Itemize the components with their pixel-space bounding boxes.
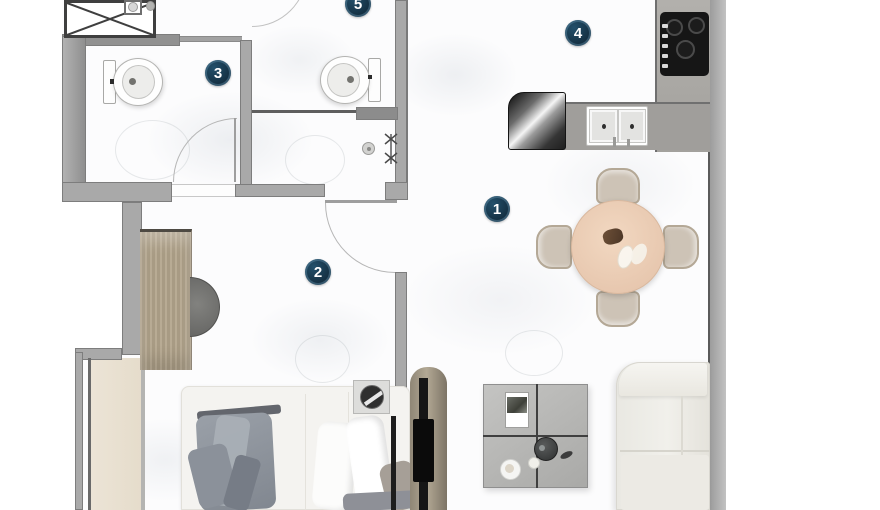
duvet-seam	[305, 394, 306, 510]
refrigerator-icon	[508, 92, 566, 150]
sofa-armrest	[619, 363, 707, 396]
wall	[75, 352, 83, 510]
pillow-gray	[343, 490, 410, 510]
floor-drain-dot	[367, 147, 371, 151]
wall	[62, 182, 172, 202]
floor-plan: 1 2 3 4 5	[0, 0, 880, 510]
toilet-button	[110, 79, 114, 84]
shower-valve-icon	[382, 132, 400, 166]
outside-area	[0, 355, 75, 510]
toilet-button	[368, 75, 372, 79]
wall-dark-strip	[391, 416, 396, 510]
badge-label: 5	[354, 0, 362, 13]
cooktop-knob	[662, 24, 668, 28]
wall	[62, 36, 86, 202]
door-arc-icon	[325, 203, 395, 273]
dining-chair	[596, 168, 640, 204]
tv-icon	[413, 419, 434, 482]
wall	[356, 107, 398, 120]
cooktop-knob	[662, 64, 668, 68]
badge-room-5: 5	[345, 0, 371, 17]
outside-area	[726, 0, 880, 510]
badge-room-1: 1	[484, 196, 510, 222]
dining-chair	[536, 225, 572, 269]
door-arc-icon	[173, 118, 237, 182]
badge-room-2: 2	[305, 259, 331, 285]
wall	[240, 40, 252, 197]
glass-partition	[252, 110, 360, 113]
cooktop-knob	[662, 54, 668, 58]
floor-texture	[285, 135, 345, 185]
sofa-seam	[620, 450, 710, 452]
book-cover	[507, 397, 527, 413]
badge-label: 1	[493, 201, 501, 218]
floor-texture	[505, 330, 563, 376]
toilet-flush-dot	[347, 76, 354, 83]
balcony-floor	[91, 358, 142, 510]
badge-label: 3	[214, 65, 222, 82]
cooktop-knob	[662, 44, 668, 48]
toilet-bowl	[327, 63, 360, 97]
wall	[395, 0, 408, 200]
sofa-seat	[621, 455, 709, 510]
wall	[235, 184, 325, 197]
speaker-highlight	[364, 390, 384, 406]
dining-table	[571, 200, 665, 294]
washbasin-bowl	[128, 2, 138, 12]
burner-icon	[676, 40, 695, 59]
wall	[710, 0, 726, 510]
badge-label: 2	[314, 264, 322, 281]
speaker-icon	[360, 385, 384, 409]
toilet-bowl	[122, 65, 155, 99]
floor-texture	[295, 335, 350, 383]
coffee-table-seam	[483, 435, 588, 437]
outside-area	[0, 202, 122, 355]
sink-drain-dot	[630, 124, 634, 129]
wall-line	[88, 358, 91, 510]
door-arc-icon	[252, 0, 307, 27]
badge-room-3: 3	[205, 60, 231, 86]
balcony-divider	[141, 358, 145, 510]
wardrobe	[140, 229, 192, 370]
burner-icon	[688, 17, 705, 34]
burner-icon	[666, 19, 683, 36]
dining-chair	[596, 291, 640, 327]
elevator-shaft	[64, 0, 156, 38]
door-threshold	[172, 184, 235, 197]
badge-room-4: 4	[565, 20, 591, 46]
faucet-icon	[613, 137, 616, 147]
sink-drain-dot	[602, 124, 606, 129]
drain-icon	[146, 1, 155, 11]
cooktop-knob	[662, 34, 668, 38]
faucet-icon	[627, 139, 630, 147]
bowl-inner	[505, 464, 514, 473]
wall	[180, 36, 242, 42]
tray-dot	[539, 445, 545, 451]
wall	[122, 202, 142, 355]
door-leaf	[234, 118, 236, 182]
toilet-flush-dot	[129, 78, 136, 85]
cup-icon	[528, 457, 540, 469]
dining-chair	[663, 225, 699, 269]
wall	[385, 182, 408, 200]
badge-label: 4	[574, 25, 582, 42]
stool	[190, 277, 220, 337]
